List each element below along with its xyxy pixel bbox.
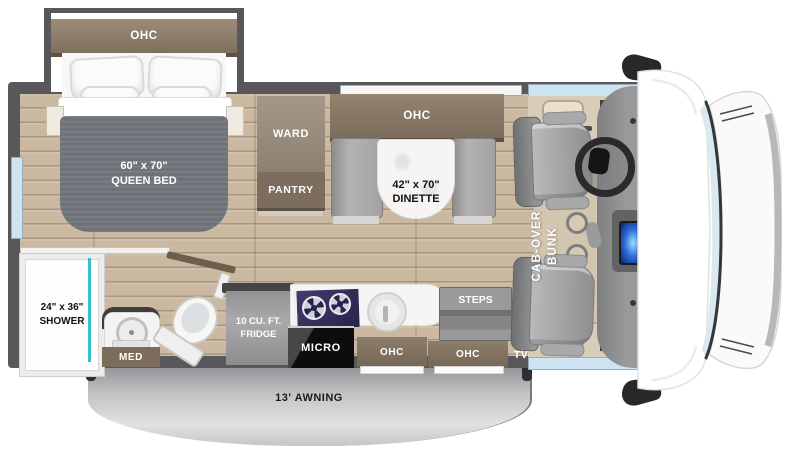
shower-name-label: SHOWER [40,315,85,329]
microwave: MICRO [288,326,354,368]
nightstand-right [226,106,244,136]
med-label: MED [119,352,143,363]
entry-ohc-label: OHC [456,349,480,360]
dinette-size-label: 42" x 70" [392,178,439,192]
fridge: 10 CU. FT. FRIDGE [226,291,291,365]
body-trim-strip [434,366,504,374]
dinette-ohc-label: OHC [403,110,430,122]
awning-label: 13' AWNING [275,392,343,446]
bed-name-label: QUEEN BED [111,174,176,189]
dinette-bench-right [452,138,496,218]
fridge-label-line1: 10 CU. FT. [236,315,281,328]
bunk-label-line2: BUNK [545,227,561,265]
pantry-cabinet: PANTRY [257,172,325,211]
cab-over-bunk-label: CAB-OVER BUNK [499,196,591,296]
fridge-label-line2: FRIDGE [241,328,277,341]
rv-floorplan: 13' AWNING OHC 60" x 70" QUEEN BED WARD … [0,0,800,462]
bunk-label-line1: CAB-OVER [529,211,545,282]
pantry-label: PANTRY [268,184,314,196]
bedroom-window [11,157,23,239]
queen-bed: 60" x 70" QUEEN BED [60,116,228,232]
pantry-base [259,211,323,216]
dinette-bench-left [331,138,383,218]
dinette-bench-base-left [333,216,379,224]
front-cap-graphic [612,18,800,442]
seat-armrest [542,111,586,126]
entry-overhead-cabinet: OHC [428,341,508,368]
microwave-label: MICRO [301,342,341,354]
bed-size-label: 60" x 70" [120,159,167,174]
shower-size-label: 24" x 36" [41,301,84,315]
med-cabinet: MED [102,347,160,367]
kitchen-ohc-label: OHC [380,347,404,358]
cab-roof [638,70,710,389]
kitchen-overhead-cabinet: OHC [357,337,427,367]
bedroom-overhead-cabinet: OHC [51,19,237,57]
burner-icon [329,293,351,315]
wardrobe-cabinet: WARD [257,96,325,174]
steering-wheel-hub [587,147,610,176]
wardrobe-label: WARD [273,128,309,140]
shower: 24" x 36" SHOWER [20,254,104,376]
bathroom-wall [20,247,170,254]
lavatory-sink-drain [129,330,134,335]
steps-label: STEPS [458,294,492,306]
shower-door-glass [88,258,91,362]
dinette-bench-base-right [454,216,492,224]
seat-armrest [540,342,584,357]
burner-icon [302,296,326,320]
dinette-name-label: DINETTE [392,192,439,206]
kitchen-faucet [383,306,388,322]
dinette-table: 42" x 70" DINETTE [377,139,455,219]
body-trim-strip [360,366,424,374]
dinette-overhead-cabinet: OHC [330,94,504,142]
awning: 13' AWNING [88,366,532,446]
bedroom-ohc-label: OHC [130,30,157,42]
